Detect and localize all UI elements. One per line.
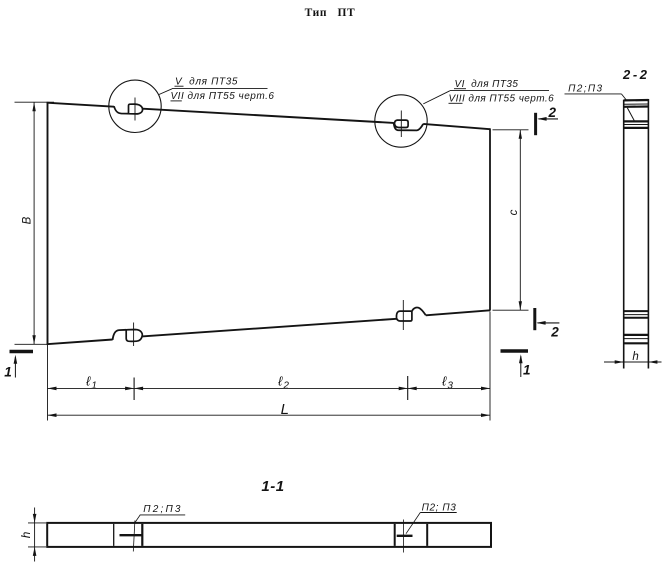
svg-text:П2;П3: П2;П3 (143, 504, 182, 515)
svg-text:Тип ПТ: Тип ПТ (305, 7, 356, 19)
svg-text:П2;П3: П2;П3 (568, 84, 603, 95)
svg-text:1-1: 1-1 (261, 478, 284, 495)
svg-text:VII для ПТ55 черт.6: VII для ПТ55 черт.6 (171, 91, 275, 102)
svg-text:h: h (632, 351, 638, 363)
svg-text:L: L (281, 401, 289, 418)
svg-text:с: с (508, 209, 520, 215)
svg-text:2: 2 (550, 325, 559, 340)
svg-text:1: 1 (523, 363, 531, 378)
svg-text:В: В (22, 216, 34, 224)
svg-text:ℓ3: ℓ3 (442, 374, 453, 392)
svg-text:ℓ2: ℓ2 (278, 374, 289, 392)
svg-text:П2; П3: П2; П3 (422, 503, 457, 514)
svg-text:h: h (21, 532, 33, 538)
svg-text:1: 1 (4, 365, 12, 380)
svg-text:VIII для ПТ55 черт.6: VIII для ПТ55 черт.6 (449, 94, 555, 105)
svg-text:2: 2 (547, 105, 556, 120)
svg-text:2-2: 2-2 (622, 67, 650, 82)
svg-text:ℓ1: ℓ1 (86, 374, 97, 392)
svg-text:V для ПТ35: V для ПТ35 (175, 77, 238, 88)
